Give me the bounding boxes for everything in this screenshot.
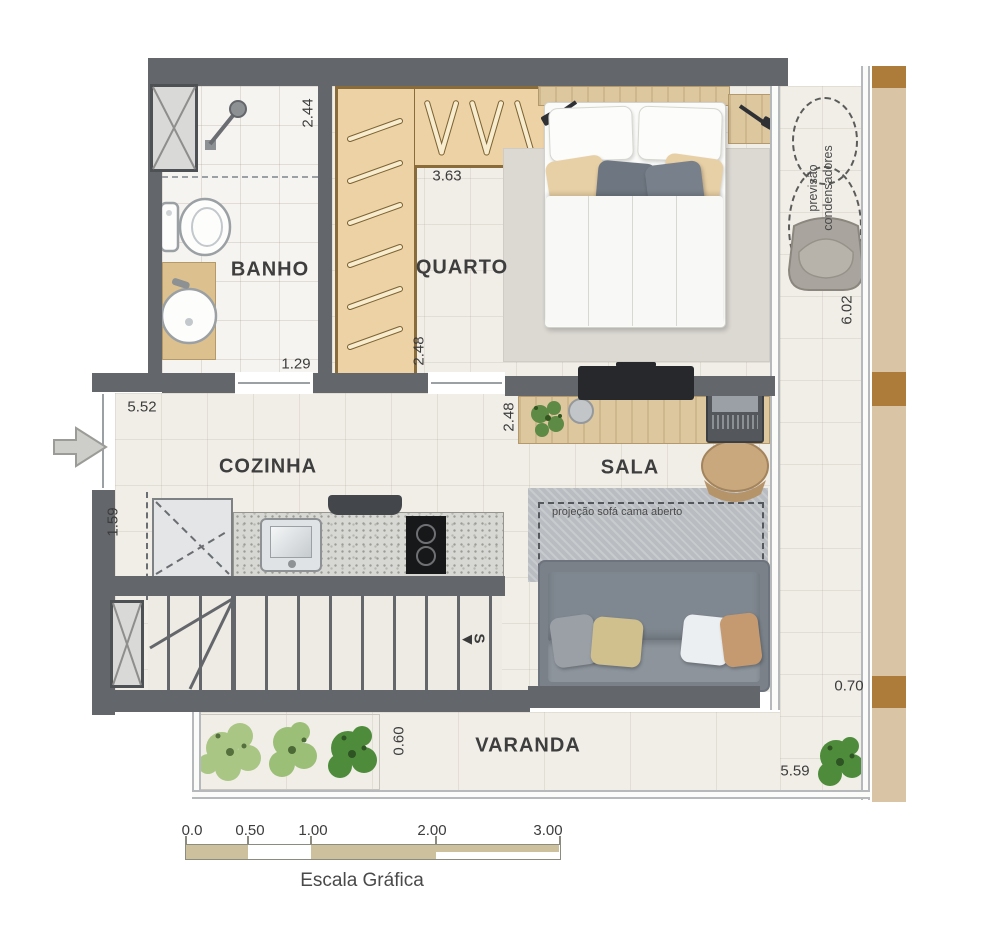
scale-segment: [436, 845, 559, 852]
wall-mid-b: [313, 373, 428, 393]
laptop: [706, 391, 764, 443]
condensers-note-line1: previsão: [806, 145, 821, 230]
scale-bar-frame: [185, 844, 561, 860]
deck-accent-top: [872, 66, 906, 88]
dim-varanda-depth: 0.60: [391, 726, 408, 755]
sofa-pillow-gold: [590, 616, 644, 668]
scale-tick: [185, 836, 187, 846]
scale-tick: [310, 836, 312, 846]
scale-tick-label: 2.00: [417, 822, 446, 839]
shower-head-icon: [205, 100, 253, 152]
dim-banho-depth: 2.44: [300, 98, 317, 127]
quarto-sala-window: [770, 86, 780, 710]
closet-vertical: [335, 86, 417, 378]
wall-below-sofa: [528, 686, 760, 708]
condensers-note: previsão condensadores: [806, 145, 836, 230]
stairs: [148, 596, 502, 690]
deck-accent-bottom: [872, 676, 906, 708]
toilet-icon: [160, 196, 234, 258]
scale-tick: [559, 836, 561, 846]
cozinha-label: COZINHA: [219, 456, 317, 479]
shaft-box-top: [150, 84, 198, 172]
dim-varanda-length: 5.59: [780, 763, 809, 780]
scale-segment: [186, 845, 248, 859]
wall-entry-step: [92, 373, 162, 392]
dim-banho-door: 1.29: [281, 356, 310, 373]
quarto-door-line: [431, 382, 502, 384]
scale-tick: [247, 836, 249, 846]
wall-top: [148, 58, 788, 86]
scale-bar-title: Escala Gráfica: [300, 870, 424, 892]
range-hood: [328, 495, 402, 515]
banho-door-line: [238, 382, 310, 384]
dim-closet-front: 3.63: [432, 168, 461, 185]
varanda-label: VARANDA: [475, 735, 581, 758]
scale-tick-label: 0.0: [182, 822, 203, 839]
closet-hangers-icon: [338, 89, 414, 375]
wall-bottom-left: [92, 690, 530, 712]
stairs-winder-icon: [148, 596, 502, 690]
scale-tick-label: 1.00: [298, 822, 327, 839]
scale-segment: [248, 845, 311, 859]
desk-plant-icon: [524, 396, 570, 440]
dim-terrace-width: 0.70: [834, 678, 863, 695]
floor-plan-page: projeção sofá cama aberto ◀S previsão c: [0, 0, 1000, 930]
wall-counter-back: [115, 576, 505, 596]
sofa-projection-label: projeção sofá cama aberto: [552, 506, 682, 518]
quarto-label: QUARTO: [416, 257, 508, 280]
varanda-left-glass: [192, 712, 201, 790]
entry-arrow-icon: [52, 424, 110, 470]
scale-tick: [435, 836, 437, 846]
bed-duvet: [546, 196, 723, 326]
bed-pillow: [548, 106, 634, 163]
scale-segment: [311, 845, 436, 859]
tv: [578, 366, 694, 400]
stairs-direction-marker: ◀S: [462, 630, 484, 647]
dim-cozinha-length: 5.52: [127, 399, 156, 416]
dim-quarto-opening: 2.48: [411, 336, 428, 365]
sofa-pillow-tan: [719, 612, 763, 668]
varanda-outer-glass: [192, 790, 870, 799]
deck-accent-middle: [872, 372, 906, 406]
banho-label: BANHO: [231, 259, 309, 282]
banho-sink-icon: [160, 278, 220, 354]
office-chair-icon: [698, 438, 772, 504]
dim-sala-opening: 2.48: [501, 402, 518, 431]
planter-plants-icon: [196, 714, 386, 794]
scale-tick-label: 3.00: [533, 822, 562, 839]
scale-tick-label: 0.50: [235, 822, 264, 839]
stairs-letter: S: [471, 633, 488, 643]
kitchen-sink: [260, 518, 322, 572]
tv-stand: [616, 362, 656, 367]
laptop-keyboard: [712, 415, 758, 429]
sink-faucet: [288, 560, 296, 568]
sala-label: SALA: [601, 457, 659, 480]
cooktop: [406, 516, 446, 574]
sink-basin: [270, 526, 312, 558]
cooktop-burner: [416, 546, 436, 566]
laptop-screen: [712, 396, 758, 412]
cooktop-burner: [416, 524, 436, 544]
desk-bowl: [568, 398, 594, 424]
condensers-note-line2: condensadores: [821, 145, 836, 230]
dim-cozinha-depth: 1.59: [105, 507, 122, 536]
fridge: [152, 498, 233, 578]
shower-partition-line: [162, 176, 318, 178]
wall-banho-divider: [318, 86, 332, 392]
wall-mid-a: [162, 373, 235, 393]
shaft-box-bottom: [110, 600, 144, 688]
dim-terrace-length: 6.02: [839, 295, 856, 324]
